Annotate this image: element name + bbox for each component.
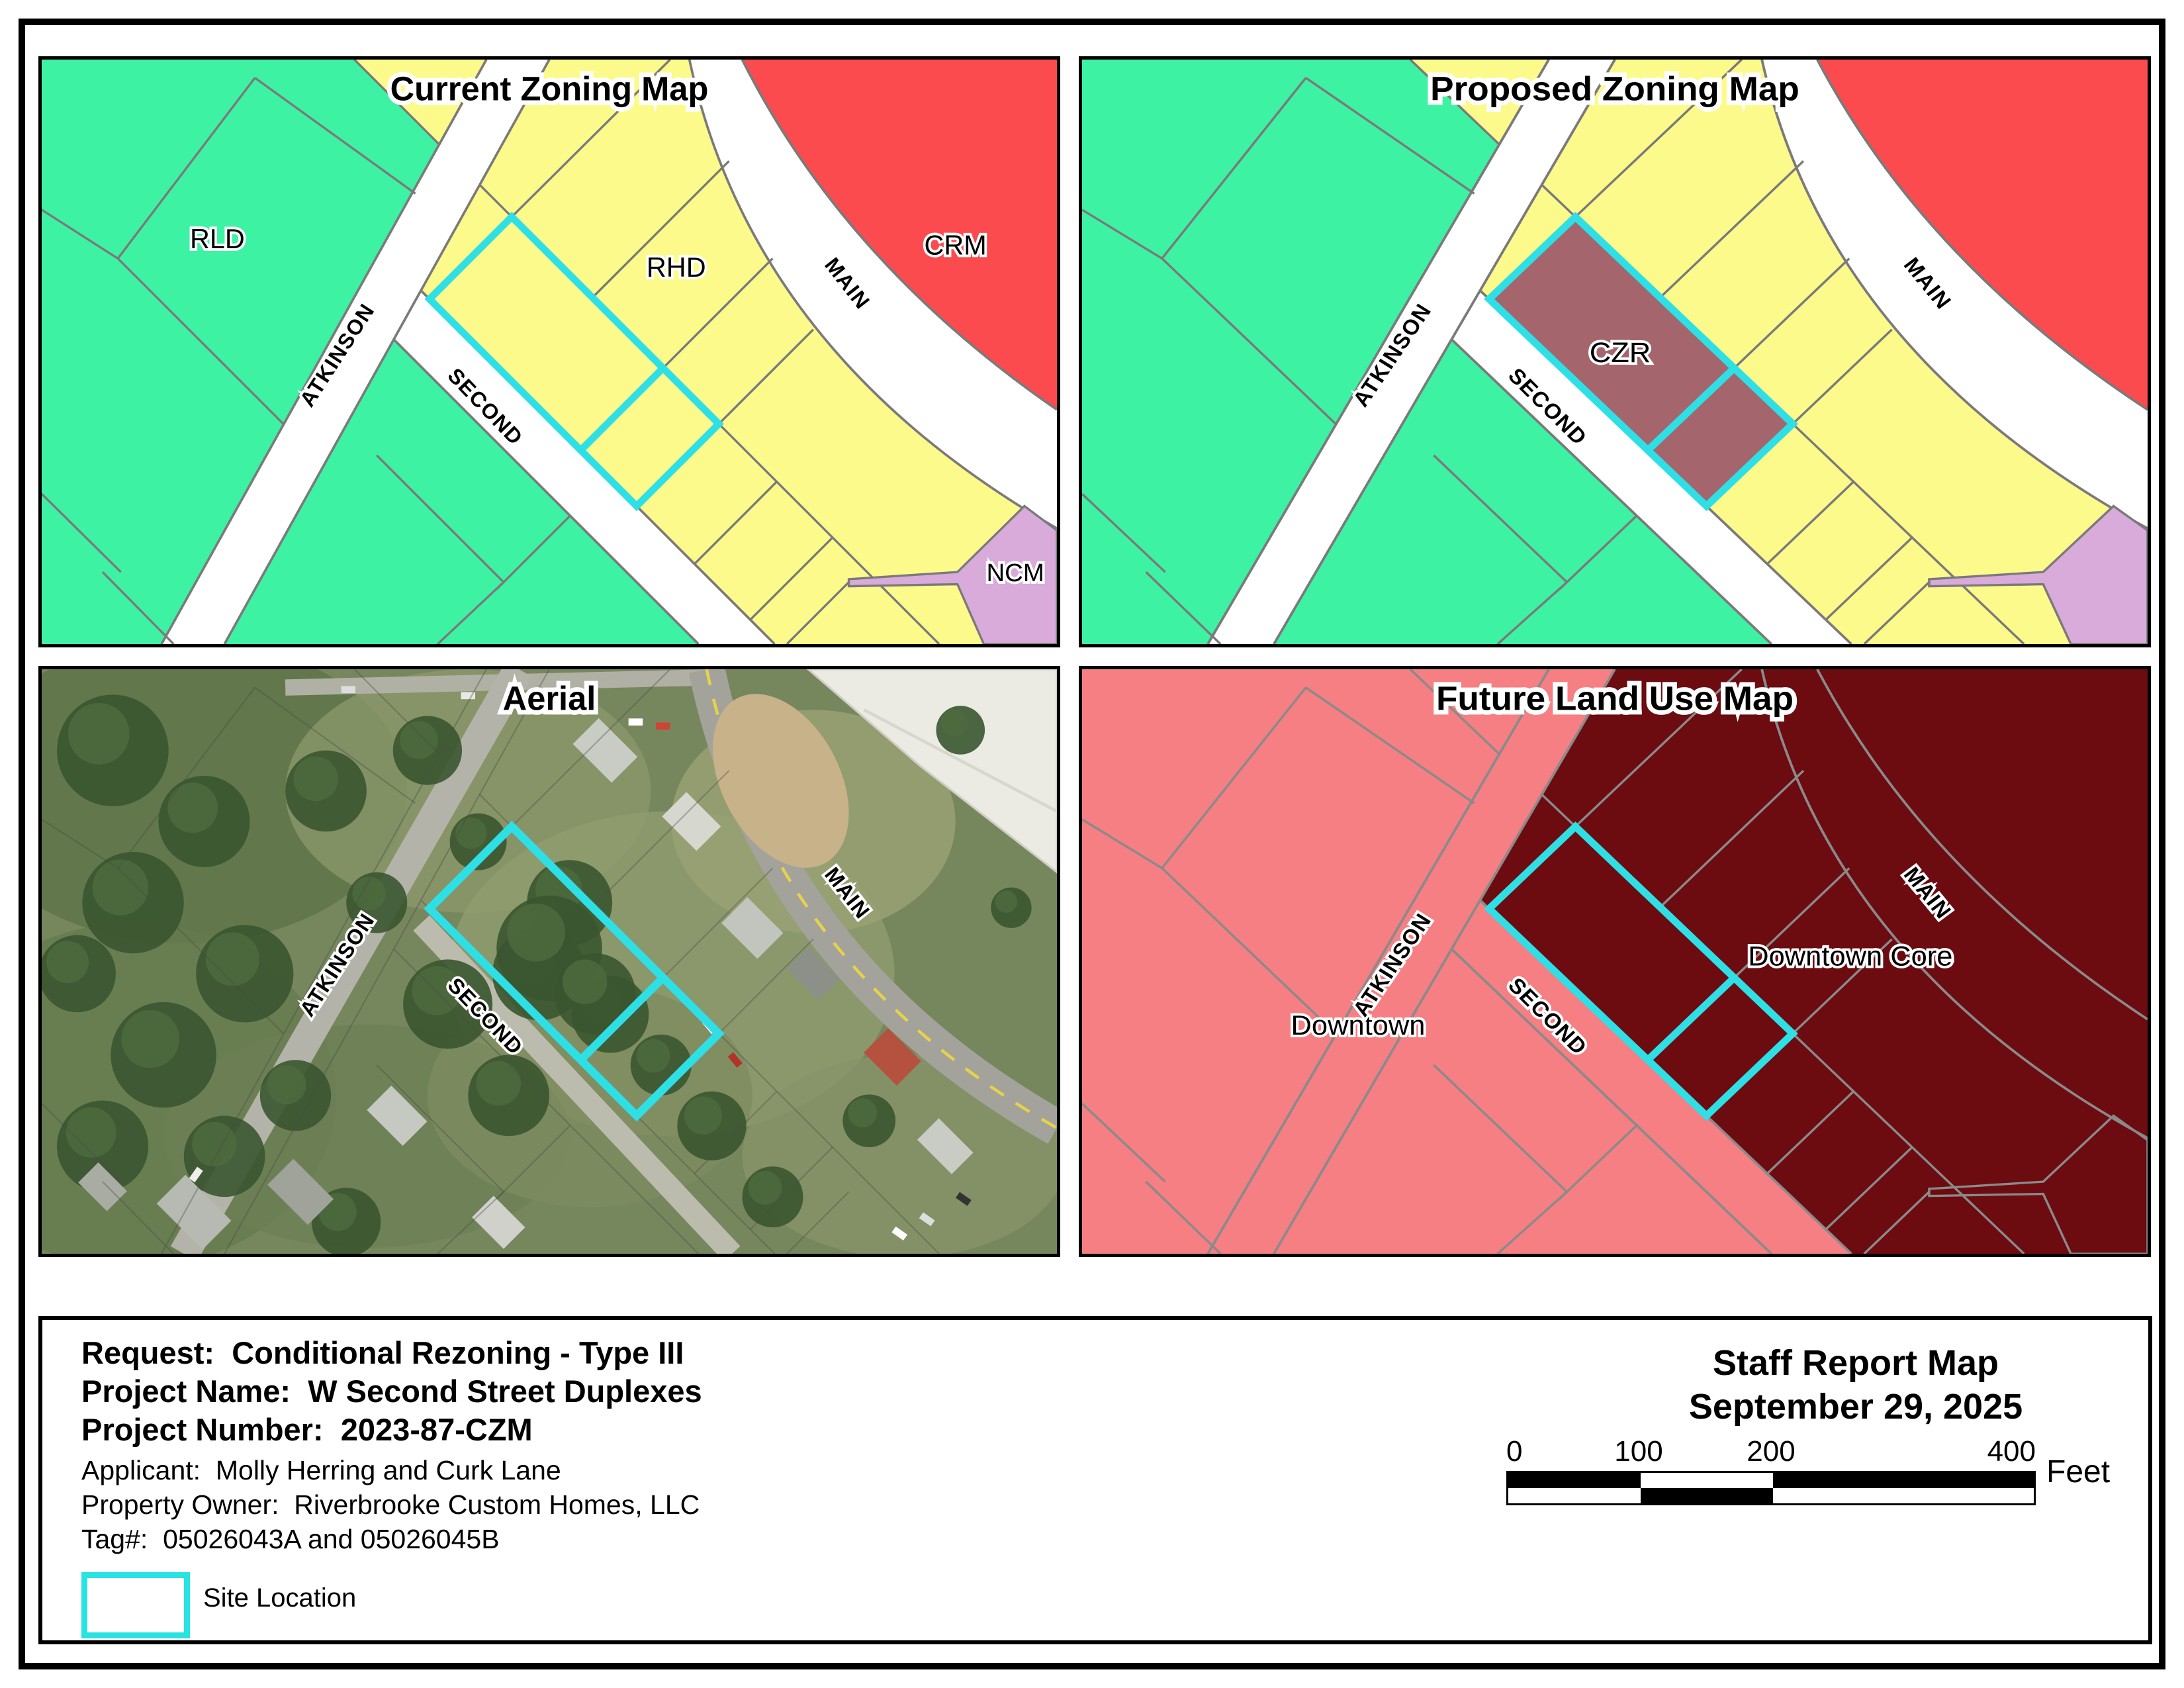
- scale-bar: 0 100 200 400 Feet: [1506, 1435, 2168, 1505]
- zone-label-downtown-core: Downtown Core: [1748, 941, 1952, 972]
- scale-tick-200: 200: [1747, 1435, 1795, 1468]
- aerial-photo-panel: ATKINSONSECONDMAINAerial: [38, 666, 1060, 1257]
- aerial-photo-svg: ATKINSONSECONDMAINAerial: [42, 669, 1057, 1254]
- proposed-map-svg: CZRATKINSONSECONDMAINProposed Zoning Map: [1082, 60, 2148, 644]
- zone-label-ncm: NCM: [986, 559, 1044, 587]
- panel-title: Future Land Use Map: [1436, 679, 1794, 717]
- applicant-line: Applicant: Molly Herring and Curk Lane: [81, 1455, 561, 1486]
- request-line: Request: Conditional Rezoning - Type III: [81, 1335, 684, 1371]
- zone-label-rhd: RHD: [647, 252, 706, 283]
- current-zoning-map-panel: RLDRHDCRMNCMATKINSONSECONDMAINCurrent Zo…: [38, 56, 1060, 647]
- staff-report-map-page: RLDRHDCRMNCMATKINSONSECONDMAINCurrent Zo…: [0, 0, 2184, 1688]
- future-land-use-map-panel: DowntownDowntown CoreATKINSONSECONDMAINF…: [1079, 666, 2151, 1257]
- scale-unit-label: Feet: [2046, 1454, 2110, 1490]
- project-name-line: Project Name: W Second Street Duplexes: [81, 1373, 702, 1409]
- zone-label-rld: RLD: [190, 224, 245, 254]
- site-location-label: Site Location: [203, 1583, 356, 1613]
- scale-bar-graphic: [1506, 1471, 2036, 1505]
- aerial-car: [341, 686, 355, 693]
- zone-label-downtown: Downtown: [1291, 1010, 1426, 1041]
- current-map-svg: RLDRHDCRMNCMATKINSONSECONDMAINCurrent Zo…: [42, 60, 1057, 644]
- panel-title: Current Zoning Map: [390, 70, 709, 107]
- zone-label-crm: CRM: [924, 230, 986, 260]
- aerial-car: [656, 722, 670, 729]
- info-strip: Request: Conditional Rezoning - Type III…: [38, 1316, 2152, 1644]
- project-number-line: Project Number: 2023-87-CZM: [81, 1411, 533, 1448]
- panel-title: Aerial: [503, 679, 596, 717]
- site-location-swatch: [81, 1572, 190, 1638]
- zone-label-czr: CZR: [1590, 337, 1651, 369]
- aerial-car: [629, 718, 643, 726]
- titleblock: Staff Report Map September 29, 2025: [1598, 1341, 2114, 1429]
- flu-map-svg: DowntownDowntown CoreATKINSONSECONDMAINF…: [1082, 669, 2148, 1254]
- panel-title: Proposed Zoning Map: [1430, 70, 1799, 107]
- scale-tick-0: 0: [1506, 1435, 1522, 1468]
- property-owner-line: Property Owner: Riverbrooke Custom Homes…: [81, 1489, 700, 1521]
- scale-tick-100: 100: [1614, 1435, 1662, 1468]
- scale-tick-400: 400: [1987, 1435, 2036, 1468]
- report-date: September 29, 2025: [1598, 1385, 2114, 1429]
- report-title: Staff Report Map: [1598, 1341, 2114, 1385]
- proposed-zoning-map-panel: CZRATKINSONSECONDMAINProposed Zoning Map: [1079, 56, 2151, 647]
- tag-number-line: Tag#: 05026043A and 05026045B: [81, 1524, 500, 1555]
